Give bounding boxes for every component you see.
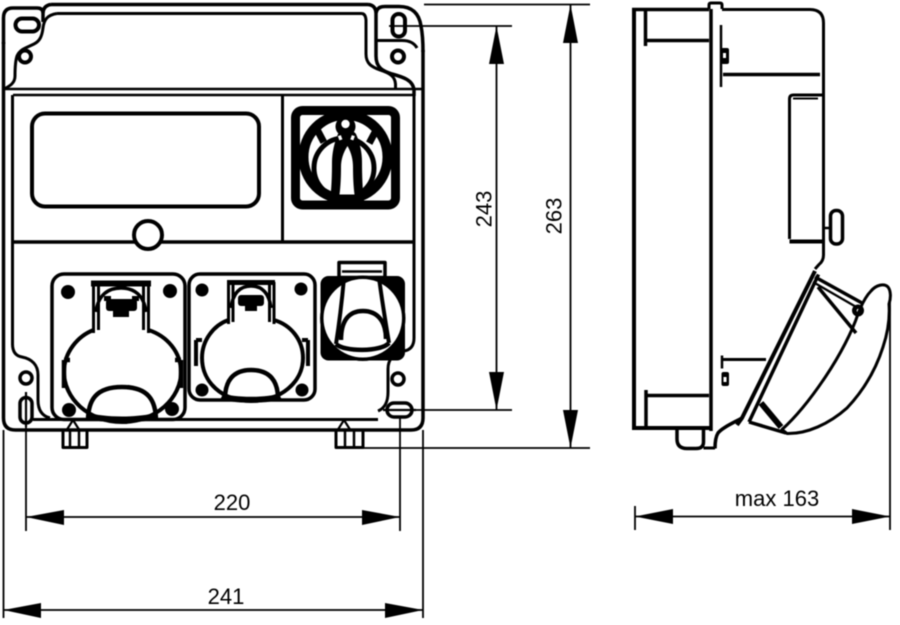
- svg-text:243: 243: [472, 191, 497, 228]
- svg-text:241: 241: [208, 584, 245, 609]
- svg-text:220: 220: [214, 490, 251, 515]
- svg-text:max 163: max 163: [735, 486, 819, 511]
- svg-text:263: 263: [542, 198, 567, 235]
